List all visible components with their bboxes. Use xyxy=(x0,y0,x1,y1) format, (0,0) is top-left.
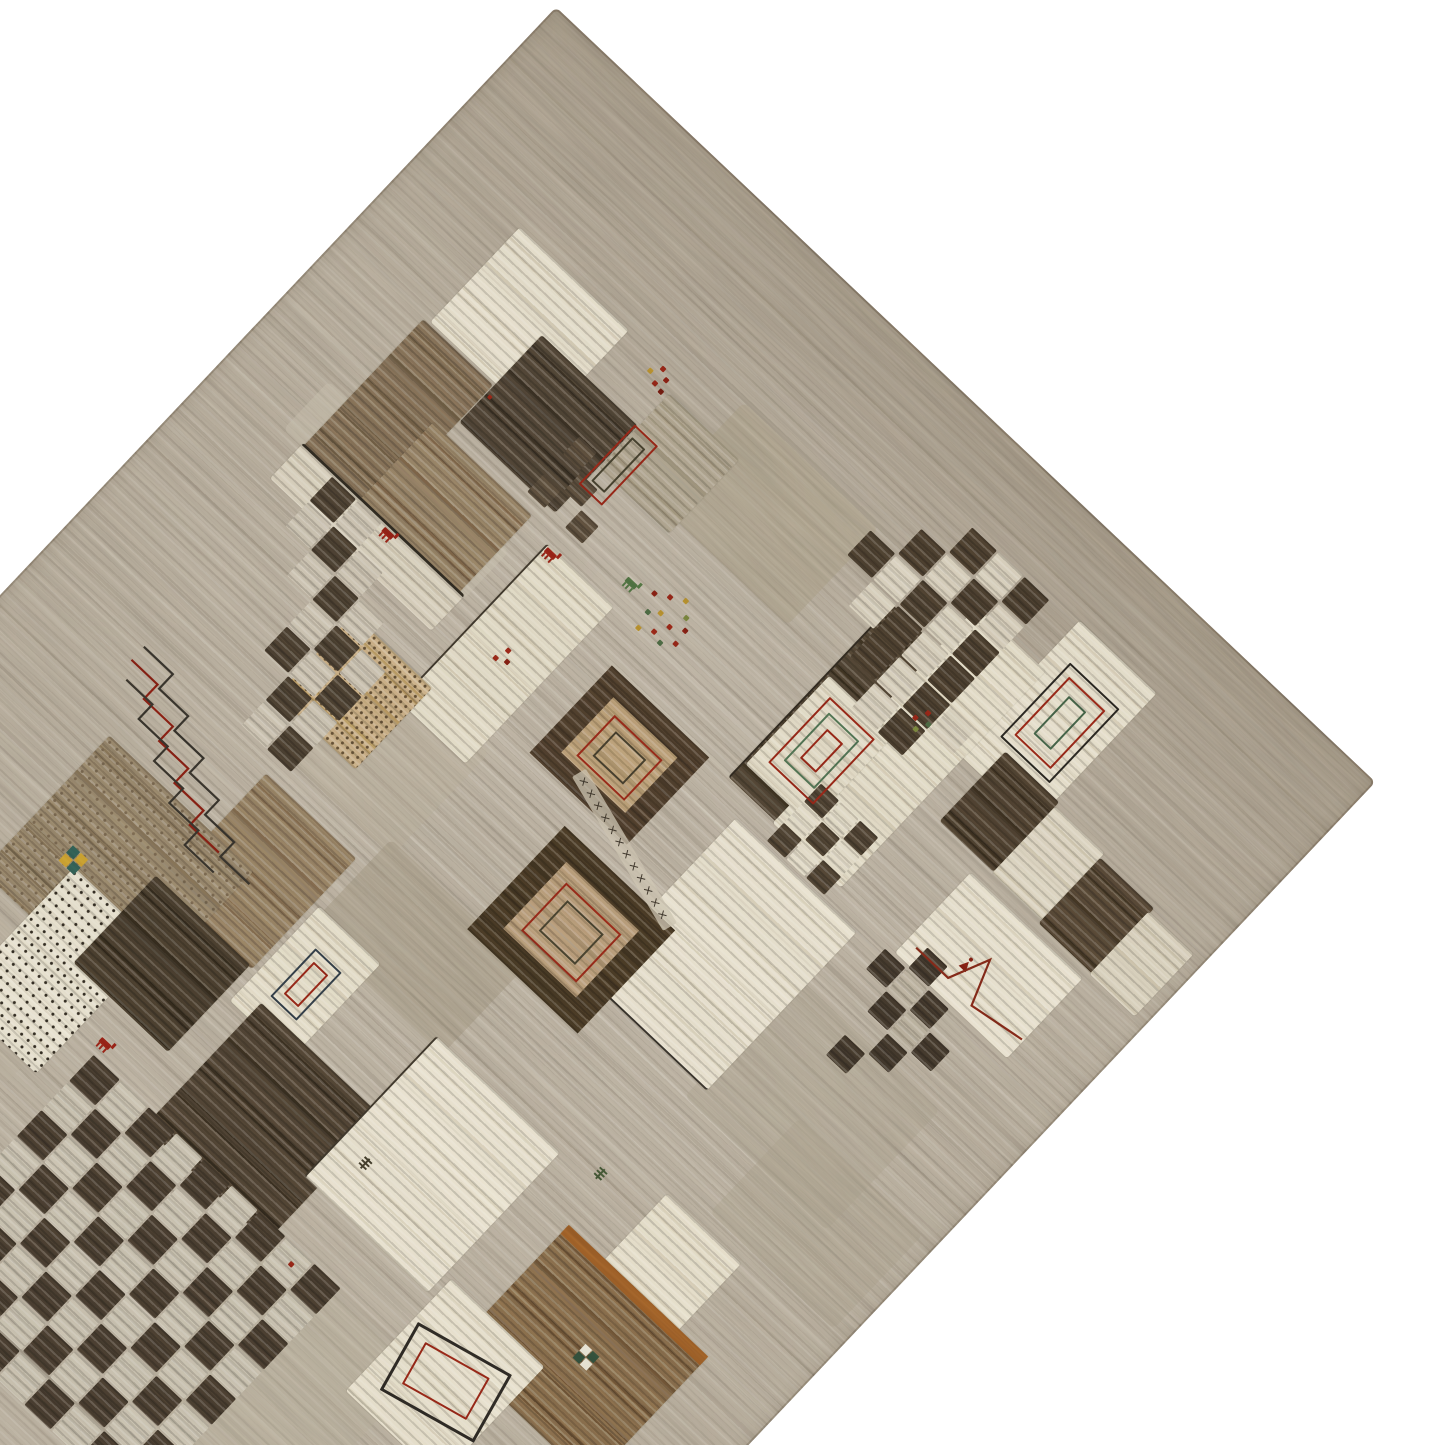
goat-animal-motif xyxy=(624,577,638,590)
flower-dot xyxy=(657,639,664,646)
flower-dot xyxy=(683,615,690,622)
gabbeh-rug-photo: ×××××××××××× xyxy=(0,7,1376,1445)
flower-dot xyxy=(644,609,651,616)
flower-dot xyxy=(667,594,674,601)
flower-dot xyxy=(659,365,666,372)
checker-cell xyxy=(565,510,599,544)
flower-dot xyxy=(682,598,689,605)
flower-dot xyxy=(651,590,658,597)
flower-dot xyxy=(657,388,664,395)
flower-dot xyxy=(666,623,673,630)
flower-dot xyxy=(682,627,689,634)
flower-dot xyxy=(672,640,679,647)
flower-dot xyxy=(651,380,658,387)
flower-dot xyxy=(647,367,654,374)
flower-dot xyxy=(657,610,664,617)
rug-patch xyxy=(304,1036,559,1292)
goat-animal-motif xyxy=(98,1037,112,1050)
flower-dot xyxy=(635,624,642,631)
photo-canvas: ×××××××××××× xyxy=(0,0,1445,1445)
flower-dot xyxy=(663,377,670,384)
tree-motif xyxy=(595,1169,605,1180)
flower-dot xyxy=(651,628,658,635)
